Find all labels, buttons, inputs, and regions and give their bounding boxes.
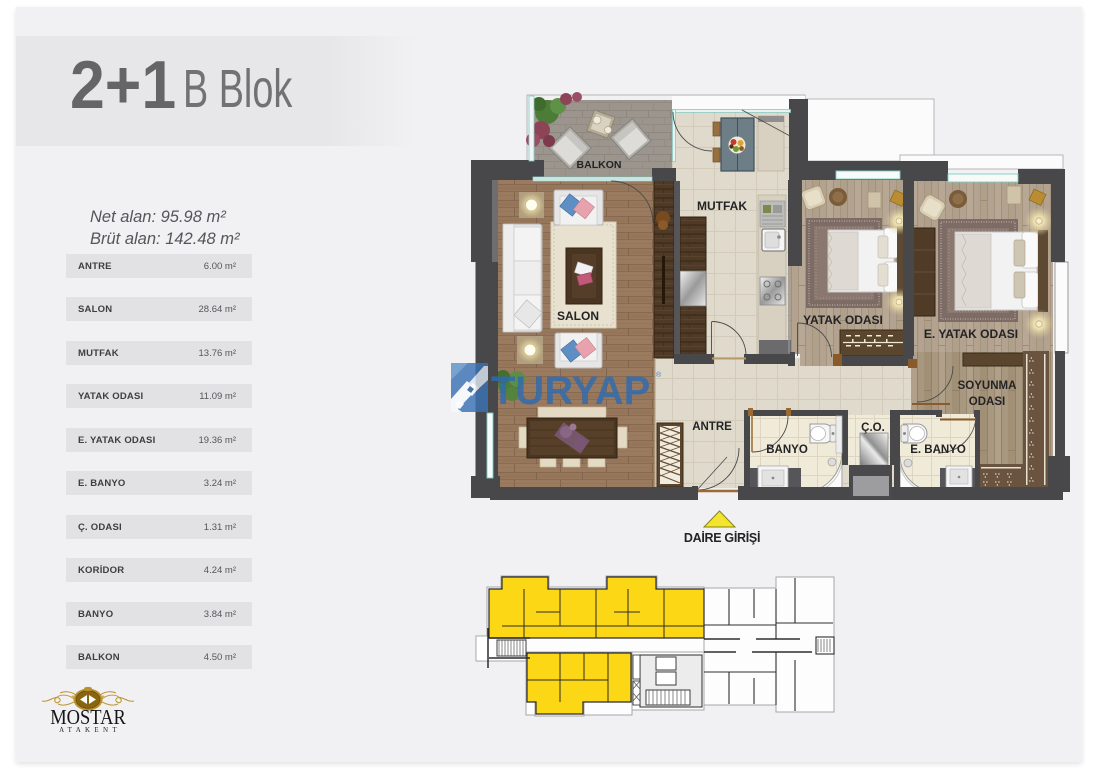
svg-text:∴: ∴ — [1029, 451, 1034, 460]
svg-text:TURYAP: TURYAP — [491, 369, 650, 413]
svg-text:E. YATAK ODASI: E. YATAK ODASI — [924, 327, 1018, 341]
svg-text:∵: ∵ — [1007, 479, 1012, 488]
svg-text:MUTFAK: MUTFAK — [697, 199, 747, 213]
svg-text:∴: ∴ — [1029, 367, 1034, 376]
svg-text:ANTRE: ANTRE — [692, 421, 732, 433]
svg-text:Ç.O.: Ç.O. — [861, 422, 885, 434]
svg-text:∴: ∴ — [1029, 391, 1034, 400]
svg-text:ODASI: ODASI — [969, 396, 1005, 408]
svg-text:BALKON: BALKON — [577, 159, 622, 171]
svg-text:E. BANYO: E. BANYO — [910, 444, 966, 456]
svg-text:SALON: SALON — [557, 309, 599, 323]
svg-text:∴: ∴ — [1029, 403, 1034, 412]
svg-text:∴: ∴ — [1029, 379, 1034, 388]
svg-text:∴: ∴ — [1029, 355, 1034, 364]
svg-text:∴: ∴ — [1029, 463, 1034, 472]
svg-text:∴: ∴ — [1029, 427, 1034, 436]
svg-text:∵: ∵ — [995, 479, 1000, 488]
svg-text:YATAK ODASI: YATAK ODASI — [803, 313, 883, 327]
svg-text:DAİRE GİRİŞİ: DAİRE GİRİŞİ — [684, 530, 760, 545]
svg-text:BANYO: BANYO — [766, 444, 808, 456]
svg-text:∴: ∴ — [1029, 415, 1034, 424]
svg-text:∵: ∵ — [983, 479, 988, 488]
svg-text:∴: ∴ — [1029, 439, 1034, 448]
svg-text:SOYUNMA: SOYUNMA — [958, 380, 1017, 392]
svg-text:®: ® — [656, 371, 662, 379]
svg-text:∴: ∴ — [1029, 475, 1034, 484]
